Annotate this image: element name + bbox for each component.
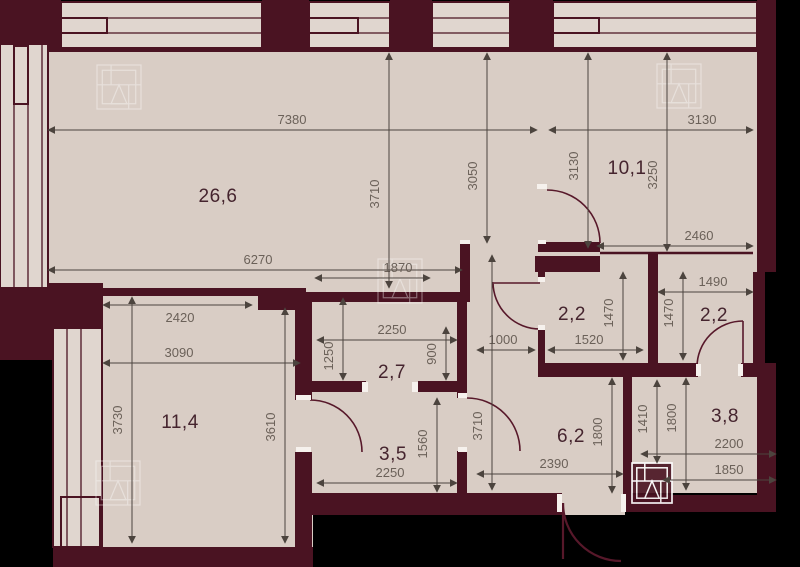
window-top-3 [432, 2, 510, 48]
room-area-label-living-room: 26,6 [199, 186, 238, 207]
dimension-label: 1000 [489, 332, 518, 347]
dimension-label: 6270 [244, 252, 273, 267]
dimension-label: 2390 [540, 456, 569, 471]
room-area-label-entrance-hall: 6,2 [557, 426, 585, 447]
window-top-1 [61, 2, 262, 48]
dimension-label: 1560 [415, 430, 430, 459]
dimension-label: 3710 [470, 412, 485, 441]
dimension-label: 3710 [367, 180, 382, 209]
dimension-label: 3130 [688, 112, 717, 127]
dimension-label: 3050 [465, 162, 480, 191]
vent-shaft-logo [632, 463, 672, 503]
dimension-label: 2200 [715, 436, 744, 451]
dimension-label: 3730 [110, 406, 125, 435]
dimension-label: 3130 [566, 152, 581, 181]
dimension-label: 3250 [645, 161, 660, 190]
floor-plan-drawing: 7380313062702460149024203090187022501000… [0, 0, 800, 567]
window-top-2 [309, 2, 390, 48]
dimension-label: 1470 [661, 299, 676, 328]
room-area-label-storage: 3,8 [711, 406, 739, 427]
floor-plan-canvas: 7380313062702460149024203090187022501000… [0, 0, 800, 567]
dimension-label: 1410 [635, 405, 650, 434]
room-area-label-corridor: 3,5 [379, 444, 407, 465]
room-area-label-hall-middle: 2,7 [378, 362, 406, 383]
dimension-label: 1800 [664, 404, 679, 433]
dimension-label: 3090 [165, 345, 194, 360]
dimension-label: 2460 [685, 228, 714, 243]
window-top-4 [553, 2, 757, 48]
room-area-label-bedroom-2: 10,1 [608, 158, 647, 179]
dimension-label: 1520 [575, 332, 604, 347]
window-left-living [0, 44, 48, 288]
dimension-label: 3610 [263, 413, 278, 442]
dimension-label: 1850 [715, 462, 744, 477]
room-area-label-bathroom-left: 2,2 [558, 304, 586, 325]
dimension-label: 2250 [376, 465, 405, 480]
dimension-label: 1870 [384, 260, 413, 275]
dimension-label: 2420 [166, 310, 195, 325]
dimension-label: 7380 [278, 112, 307, 127]
room-area-label-bathroom-right: 2,2 [700, 305, 728, 326]
dimension-label: 1490 [699, 274, 728, 289]
dimension-label: 1470 [601, 299, 616, 328]
dimension-label: 1800 [590, 418, 605, 447]
room-area-label-bedroom-1: 11,4 [161, 412, 199, 433]
dimension-label: 900 [424, 343, 439, 365]
dimension-label: 2250 [378, 322, 407, 337]
window-left-bedroom [53, 328, 102, 547]
dimension-label: 1250 [321, 342, 336, 371]
